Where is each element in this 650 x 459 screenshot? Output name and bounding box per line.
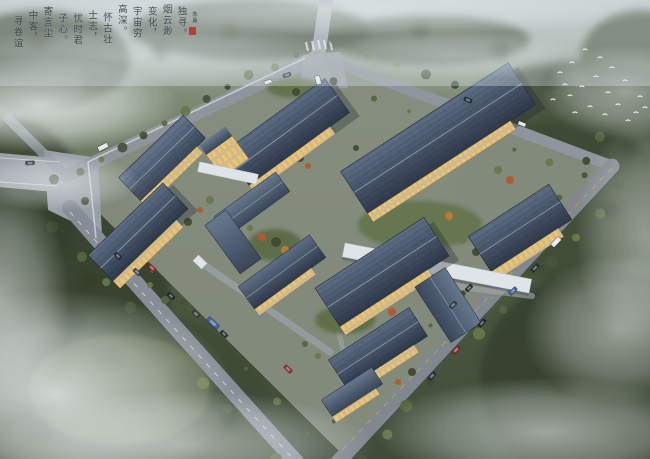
tree <box>315 353 321 359</box>
tree <box>388 308 396 316</box>
tree <box>197 207 203 213</box>
tree <box>582 157 590 165</box>
tree <box>371 96 377 102</box>
tree <box>247 225 253 231</box>
tree <box>161 296 169 304</box>
tree <box>458 236 466 244</box>
tree <box>494 166 502 174</box>
tree <box>102 278 110 286</box>
tree <box>395 379 401 385</box>
tree <box>147 282 153 288</box>
tree <box>499 306 507 314</box>
tree <box>203 95 211 103</box>
tree <box>429 323 433 327</box>
tree <box>506 176 514 184</box>
tree <box>271 237 281 247</box>
architectural-rendering: 朱熹 独寻。烟云渺变化，宇宙穷高深。怀古壮士志，忧时君子心。寄言尘中客，寻卷谊 <box>0 0 650 459</box>
tree <box>408 368 416 376</box>
sky-mist <box>0 0 650 86</box>
scene-canvas <box>0 0 650 459</box>
tree <box>353 145 359 151</box>
tree <box>473 328 485 340</box>
tree <box>206 196 214 204</box>
tree <box>258 233 266 241</box>
tree <box>546 158 554 166</box>
tree <box>212 333 218 339</box>
tree <box>512 148 516 152</box>
tree <box>305 163 311 169</box>
tree <box>445 212 453 220</box>
tree <box>181 106 191 116</box>
tree <box>538 112 546 120</box>
tree <box>292 88 300 96</box>
forest-tree <box>79 269 101 291</box>
tree <box>244 367 248 371</box>
tree <box>77 252 87 262</box>
tree <box>302 341 308 347</box>
tree <box>546 256 558 268</box>
tree <box>180 299 188 307</box>
tree <box>407 109 411 113</box>
